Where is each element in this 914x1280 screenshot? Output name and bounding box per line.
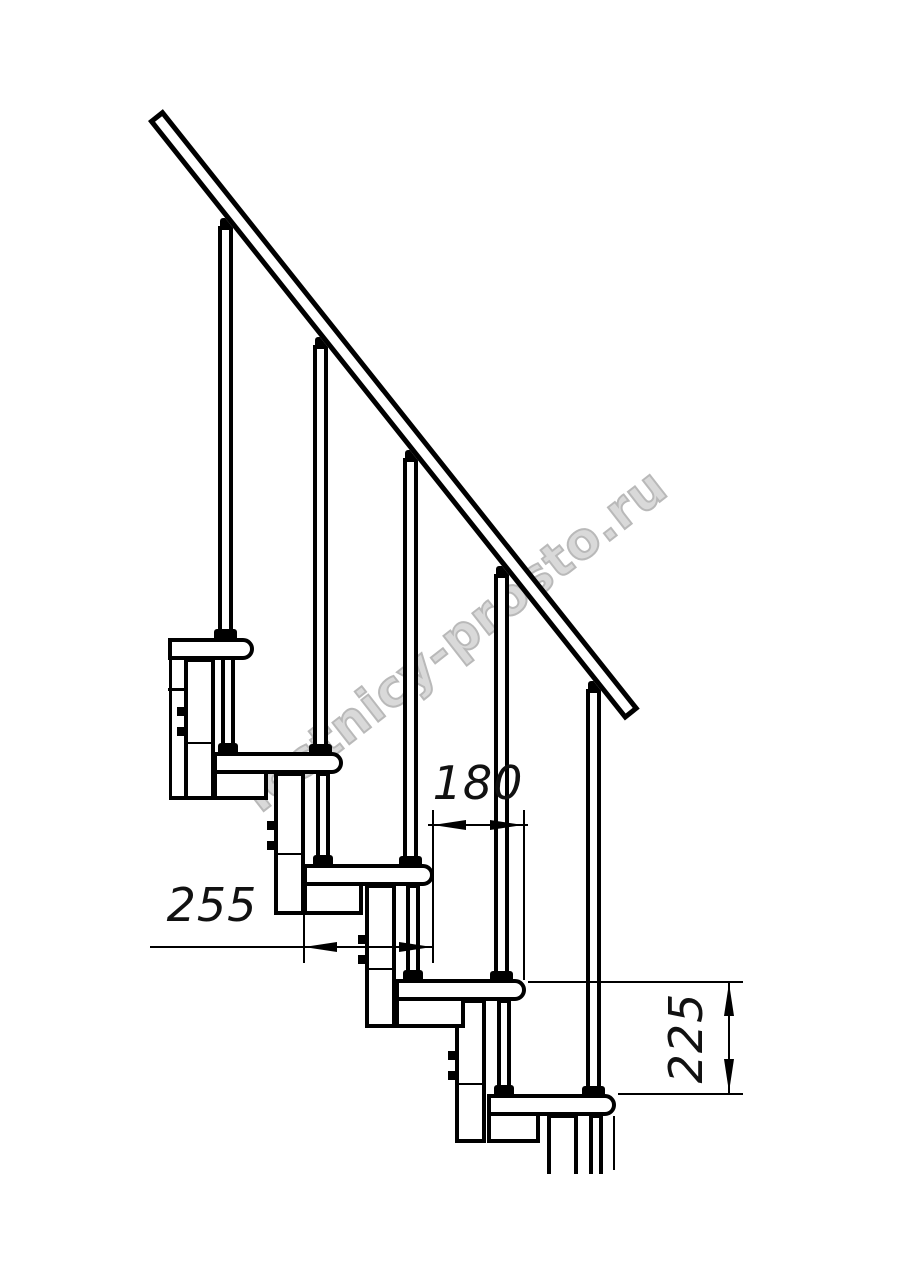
dim-180-label: 180 bbox=[418, 760, 538, 806]
column-joint-line bbox=[459, 1083, 482, 1085]
dim-180-arrow-right bbox=[490, 820, 523, 830]
cut-edge-bottom bbox=[169, 796, 187, 800]
mounting-panel bbox=[213, 774, 268, 800]
tie-rod bbox=[589, 1114, 603, 1174]
cut-continuation-line bbox=[613, 1116, 615, 1170]
dim-180-ext-right bbox=[523, 810, 525, 980]
column-bolt bbox=[267, 841, 276, 850]
column-bolt bbox=[177, 727, 186, 736]
column-joint-line bbox=[369, 968, 392, 970]
baluster-foot-bracket bbox=[582, 1086, 605, 1096]
cut-edge-line bbox=[169, 638, 172, 800]
tread bbox=[168, 638, 254, 660]
dim-180-ext-left bbox=[432, 810, 434, 963]
column-joint-line bbox=[188, 742, 211, 744]
dim-255-arrow-left bbox=[304, 942, 337, 952]
tread bbox=[213, 752, 343, 774]
tread bbox=[487, 1094, 616, 1116]
staircase-drawing: lestnicy-prosto.ru bbox=[0, 0, 914, 1280]
tie-rod-flange bbox=[403, 970, 423, 980]
tread bbox=[303, 864, 434, 886]
tie-rod bbox=[406, 884, 420, 982]
baluster-foot-bracket bbox=[490, 971, 513, 981]
baluster-foot-bracket bbox=[214, 629, 237, 639]
tie-rod bbox=[497, 999, 511, 1097]
column-bolt bbox=[358, 955, 367, 964]
dim-255-label: 255 bbox=[152, 882, 272, 928]
column-bolt bbox=[448, 1051, 457, 1060]
tie-rod-flange bbox=[218, 743, 238, 753]
dim-255-line bbox=[150, 946, 433, 948]
tie-rod bbox=[221, 656, 235, 755]
dim-225-label: 225 bbox=[663, 978, 709, 1098]
dim-225-arrow-down bbox=[724, 1059, 734, 1092]
support-column bbox=[365, 884, 396, 1028]
column-bolt bbox=[267, 821, 276, 830]
baluster bbox=[403, 458, 418, 868]
mounting-panel bbox=[395, 1001, 465, 1028]
tie-rod-flange bbox=[313, 855, 333, 865]
baluster bbox=[586, 689, 601, 1098]
column-bolt bbox=[177, 707, 186, 716]
column-bolt bbox=[358, 935, 367, 944]
cut-edge-tick bbox=[168, 688, 185, 691]
baluster bbox=[313, 345, 328, 757]
dim-180-arrow-left bbox=[433, 820, 466, 830]
baluster-foot-bracket bbox=[309, 744, 332, 754]
mounting-panel bbox=[487, 1116, 540, 1143]
support-column bbox=[184, 658, 215, 800]
dim-225-ext-top bbox=[528, 981, 743, 983]
baluster bbox=[218, 226, 233, 642]
baluster-foot-bracket bbox=[399, 856, 422, 866]
support-column bbox=[274, 772, 305, 915]
column-bolt bbox=[448, 1071, 457, 1080]
tread bbox=[395, 979, 526, 1001]
tie-rod-flange bbox=[494, 1085, 514, 1095]
support-column bbox=[547, 1114, 578, 1174]
column-joint-line bbox=[278, 853, 301, 855]
dim-225-arrow-up bbox=[724, 983, 734, 1016]
mounting-panel bbox=[303, 886, 363, 915]
tie-rod bbox=[316, 772, 330, 867]
dim-255-arrow-right bbox=[399, 942, 432, 952]
